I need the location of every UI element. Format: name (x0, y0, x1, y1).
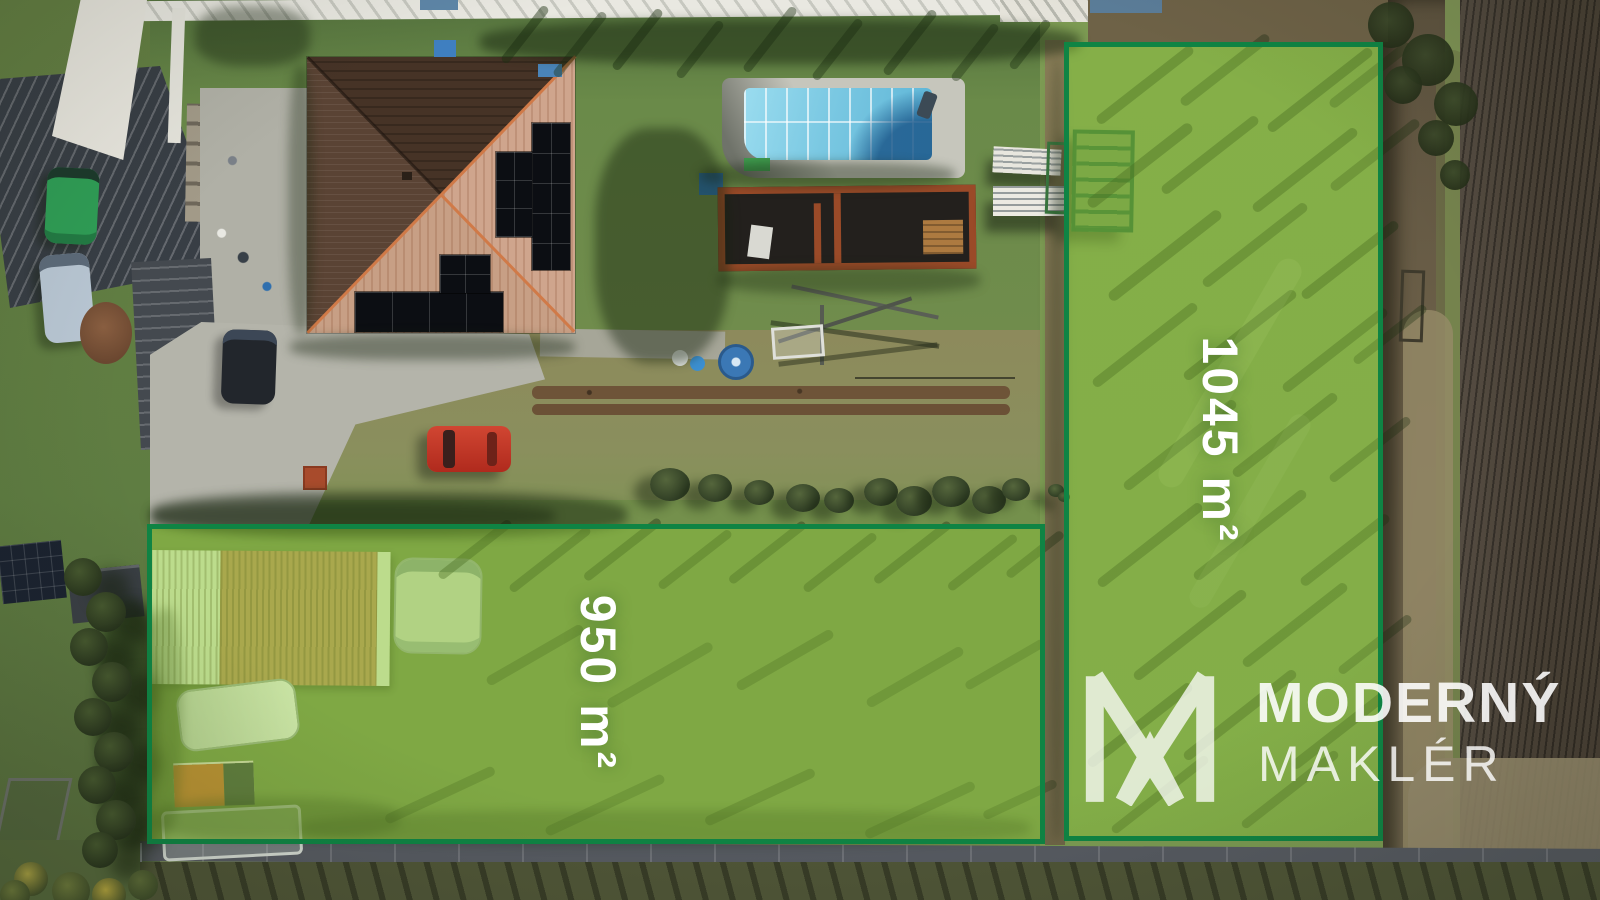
shadow-patch (718, 266, 980, 294)
conifer-bush (92, 662, 132, 702)
shadow-patch (290, 334, 575, 360)
brand-name: MODERNÝ (1256, 675, 1561, 732)
conifer-bush (78, 766, 116, 804)
brand-watermark: MODERNÝ MAKLÉR (1077, 665, 1597, 815)
shadow-patch (195, 6, 310, 66)
shrub (896, 486, 932, 516)
shadow-patch (700, 162, 955, 188)
shrub (698, 474, 732, 502)
plot-area-label-1045: 1045 m² (1191, 336, 1249, 543)
shrub (932, 476, 970, 507)
shrub (972, 486, 1006, 514)
brand-subname: MAKLÉR (1258, 739, 1506, 789)
tree (1434, 82, 1478, 126)
m-monogram-icon (1077, 668, 1223, 806)
conifer-bush (64, 558, 102, 596)
shadow-patch (595, 128, 730, 363)
conifer-bush (86, 592, 126, 632)
shadow-patch (288, 66, 314, 334)
shrub (824, 488, 854, 513)
tree (1384, 66, 1422, 104)
shrub (1002, 478, 1030, 501)
tree (1440, 160, 1470, 190)
aerial-property-photo: 1045 m² 950 m² MODERNÝ MAKLÉR (0, 0, 1600, 900)
shrub (744, 480, 774, 505)
conifer-bush (70, 628, 108, 666)
tree (1418, 120, 1454, 156)
conifer-bush (74, 698, 112, 736)
plot-area-label-950: 950 m² (569, 595, 627, 771)
bush (128, 870, 158, 900)
shrub (650, 468, 690, 501)
shrub (864, 478, 898, 506)
shrub (786, 484, 820, 512)
bush (92, 878, 126, 900)
conifer-bush (82, 832, 118, 868)
shadow-patch (480, 20, 1080, 64)
bush (52, 872, 90, 900)
